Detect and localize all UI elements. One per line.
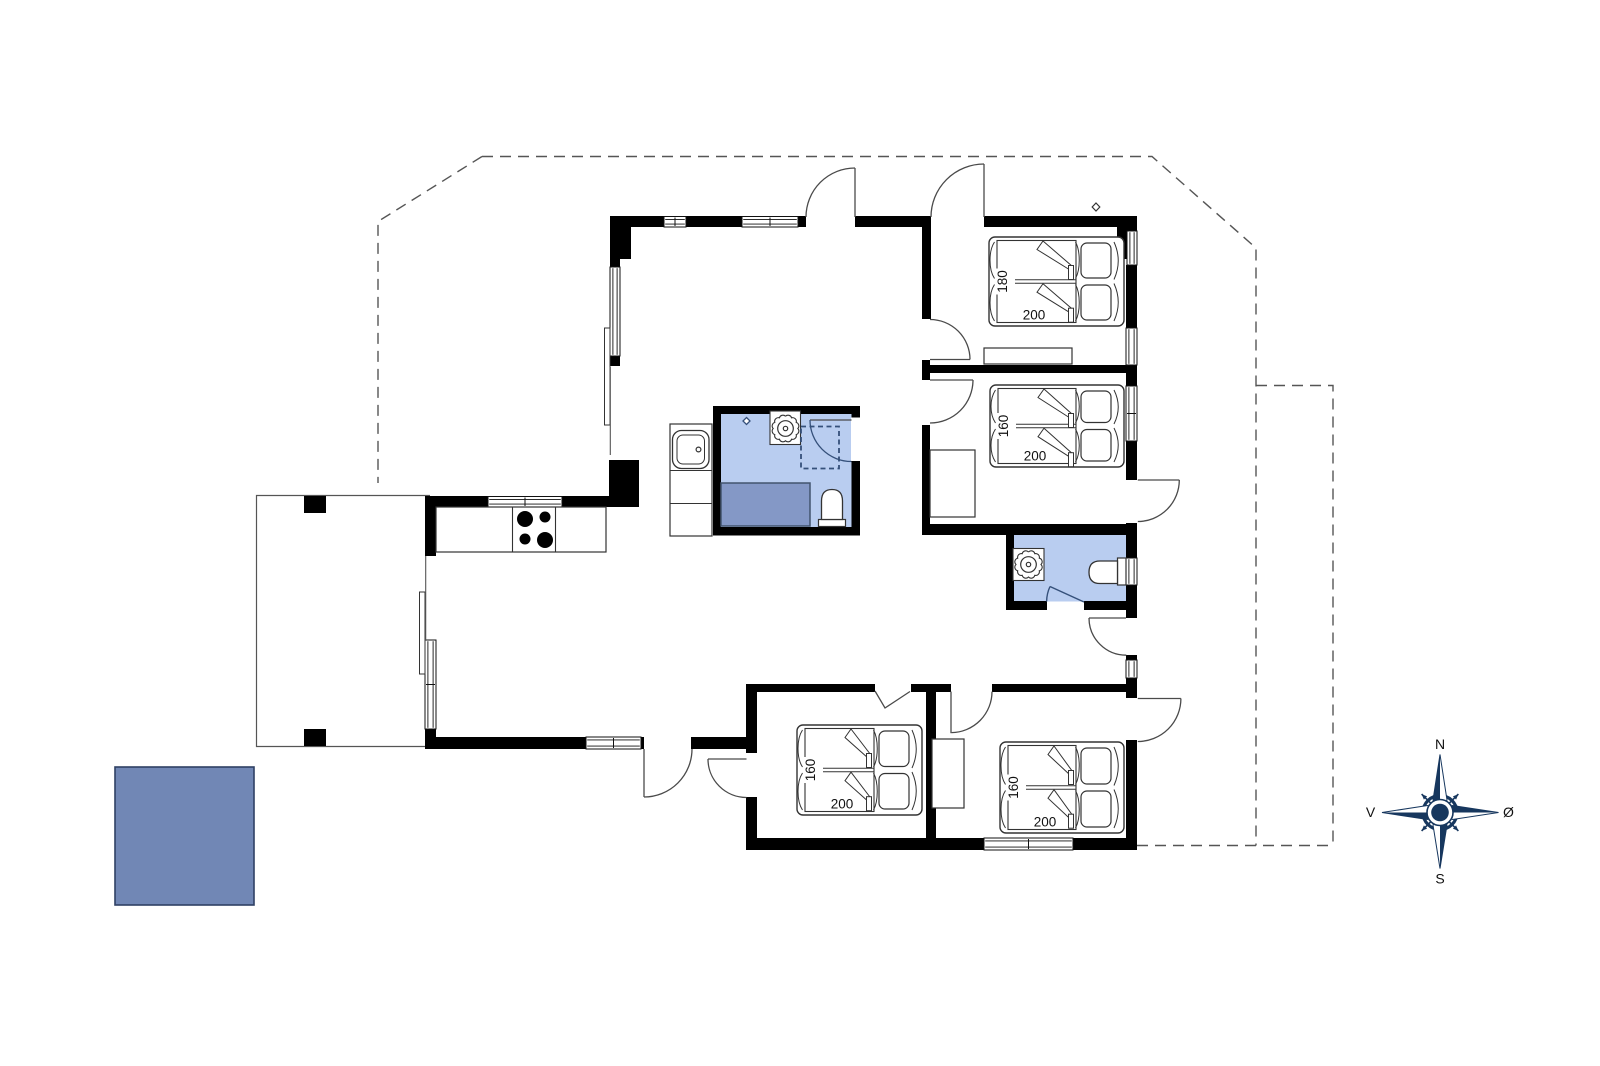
svg-text:200: 200 <box>1024 449 1047 464</box>
svg-text:180: 180 <box>995 270 1010 293</box>
svg-text:V: V <box>1366 804 1376 820</box>
svg-text:N: N <box>1435 736 1445 752</box>
svg-text:160: 160 <box>803 759 818 782</box>
svg-text:S: S <box>1435 871 1444 887</box>
svg-text:200: 200 <box>1023 308 1046 323</box>
svg-text:160: 160 <box>1006 776 1021 799</box>
svg-text:200: 200 <box>1034 815 1057 830</box>
svg-text:160: 160 <box>996 415 1011 438</box>
svg-text:Ø: Ø <box>1503 804 1514 820</box>
svg-text:200: 200 <box>831 797 854 812</box>
